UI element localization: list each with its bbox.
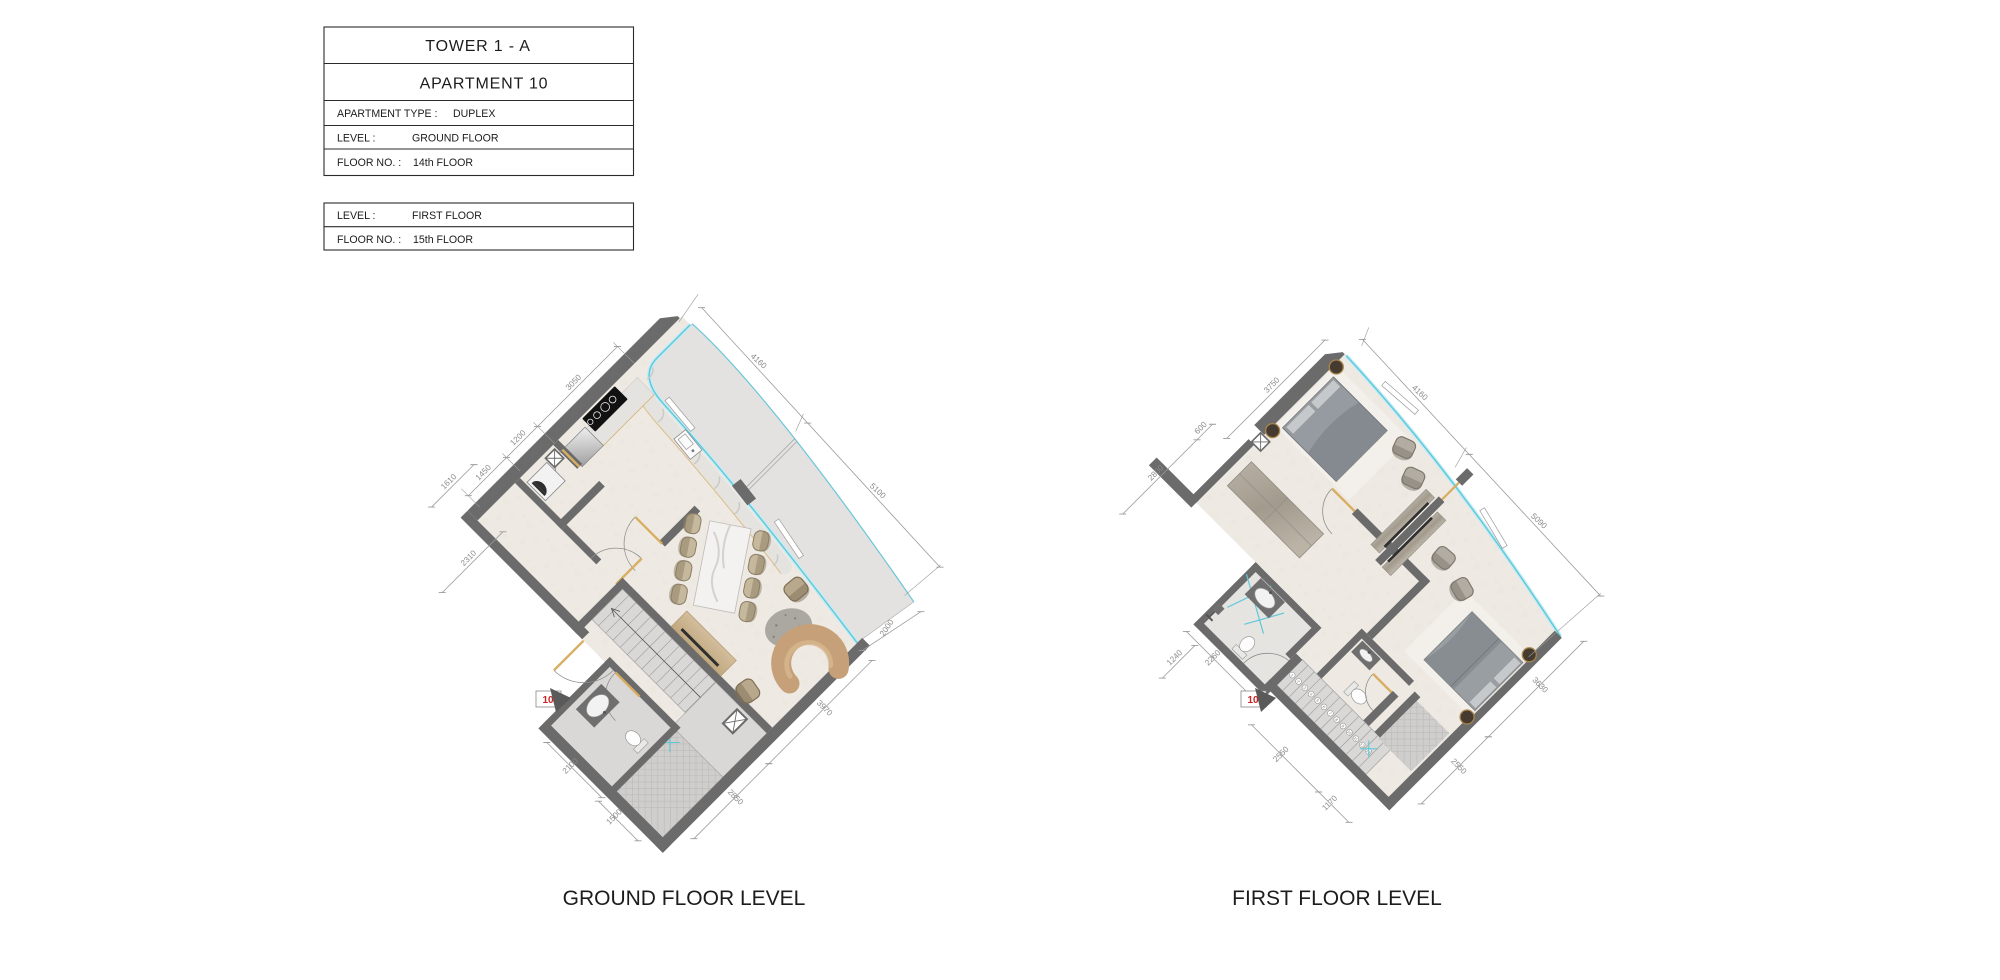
svg-text:LEVEL :: LEVEL :: [337, 210, 375, 222]
svg-text:15th FLOOR: 15th FLOOR: [413, 234, 473, 246]
svg-text:FLOOR NO. :: FLOOR NO. :: [337, 157, 401, 169]
svg-text:FIRST FLOOR LEVEL: FIRST FLOOR LEVEL: [1232, 887, 1442, 910]
svg-text:LEVEL :: LEVEL :: [337, 133, 375, 145]
svg-text:APARTMENT 10: APARTMENT 10: [420, 76, 549, 93]
svg-text:FLOOR NO. :: FLOOR NO. :: [337, 234, 401, 246]
svg-text:FIRST FLOOR: FIRST FLOOR: [412, 210, 482, 222]
svg-text:APARTMENT TYPE :: APARTMENT TYPE :: [337, 108, 437, 120]
svg-text:DUPLEX: DUPLEX: [453, 108, 495, 120]
svg-text:GROUND FLOOR: GROUND FLOOR: [412, 133, 499, 145]
svg-text:GROUND FLOOR LEVEL: GROUND FLOOR LEVEL: [563, 887, 806, 910]
svg-text:14th FLOOR: 14th FLOOR: [413, 157, 473, 169]
svg-text:TOWER 1 - A: TOWER 1 - A: [425, 38, 530, 55]
